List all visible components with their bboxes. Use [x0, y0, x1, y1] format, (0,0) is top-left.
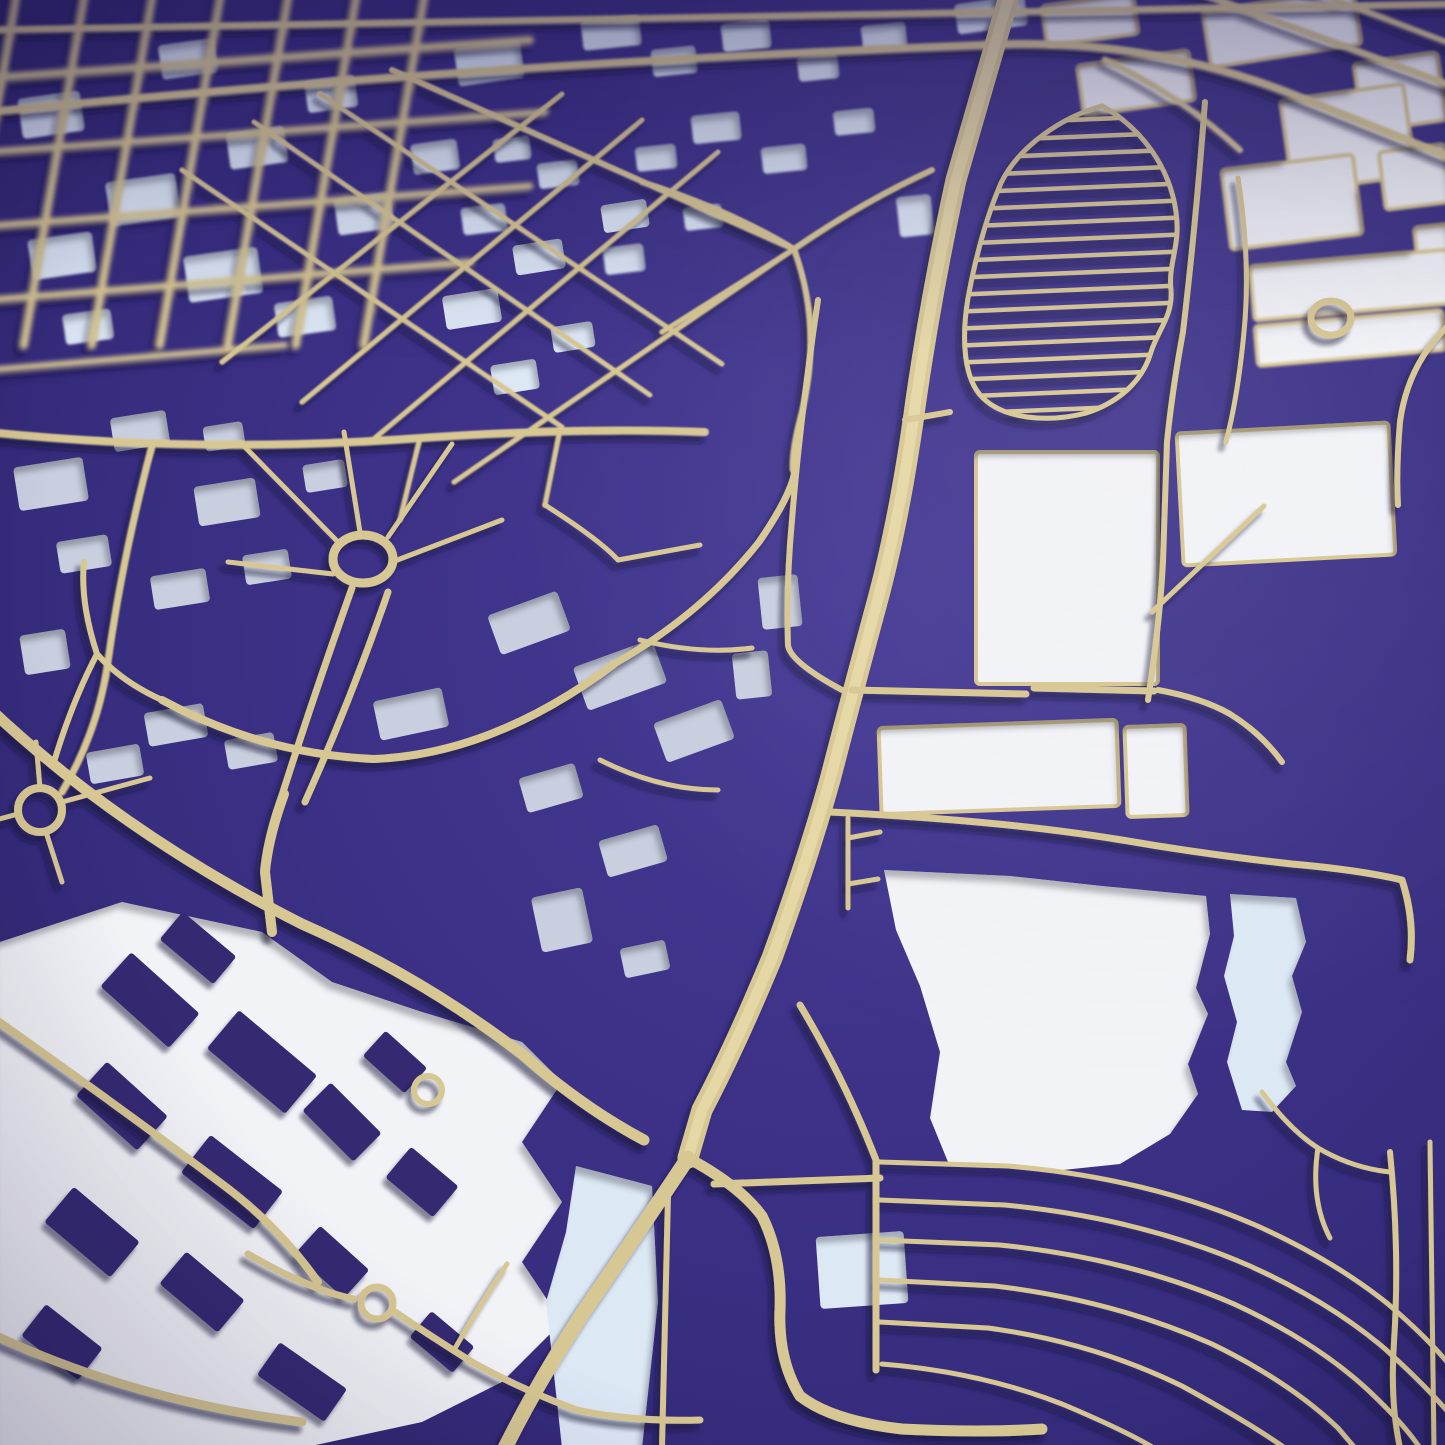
- photo-canvas: [0, 0, 1445, 1445]
- vignette-overlay: [0, 0, 1445, 1445]
- laser-cut-map: [0, 0, 1445, 1445]
